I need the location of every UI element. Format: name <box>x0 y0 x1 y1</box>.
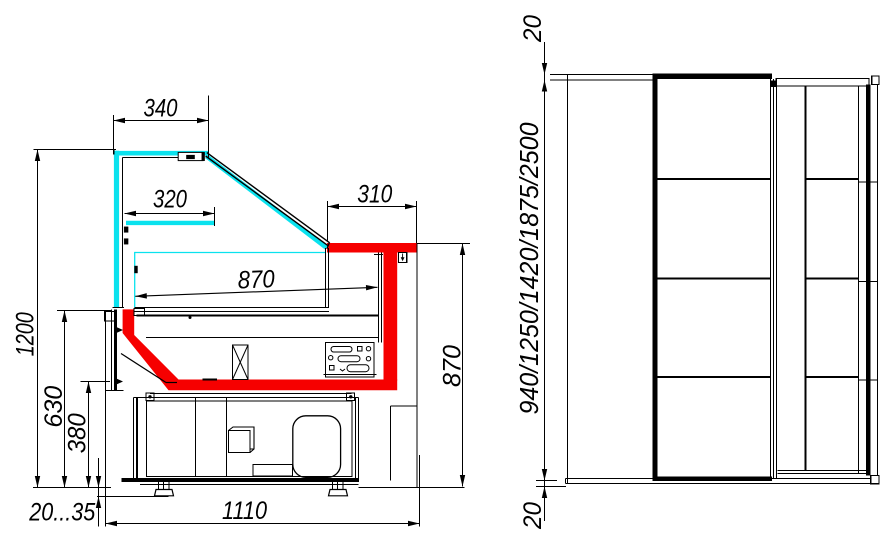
svg-text:940/1250/1420/1875/2500: 940/1250/1420/1875/2500 <box>514 122 544 415</box>
svg-text:870: 870 <box>237 265 275 294</box>
svg-text:1110: 1110 <box>222 497 267 525</box>
svg-text:380: 380 <box>64 413 92 453</box>
svg-text:870: 870 <box>439 345 467 387</box>
svg-text:20...35: 20...35 <box>28 498 95 526</box>
svg-text:20: 20 <box>519 15 547 43</box>
svg-text:340: 340 <box>144 95 178 123</box>
svg-text:310: 310 <box>357 181 392 209</box>
svg-text:20: 20 <box>519 502 547 530</box>
svg-text:320: 320 <box>153 186 187 214</box>
svg-text:1200: 1200 <box>12 312 40 356</box>
